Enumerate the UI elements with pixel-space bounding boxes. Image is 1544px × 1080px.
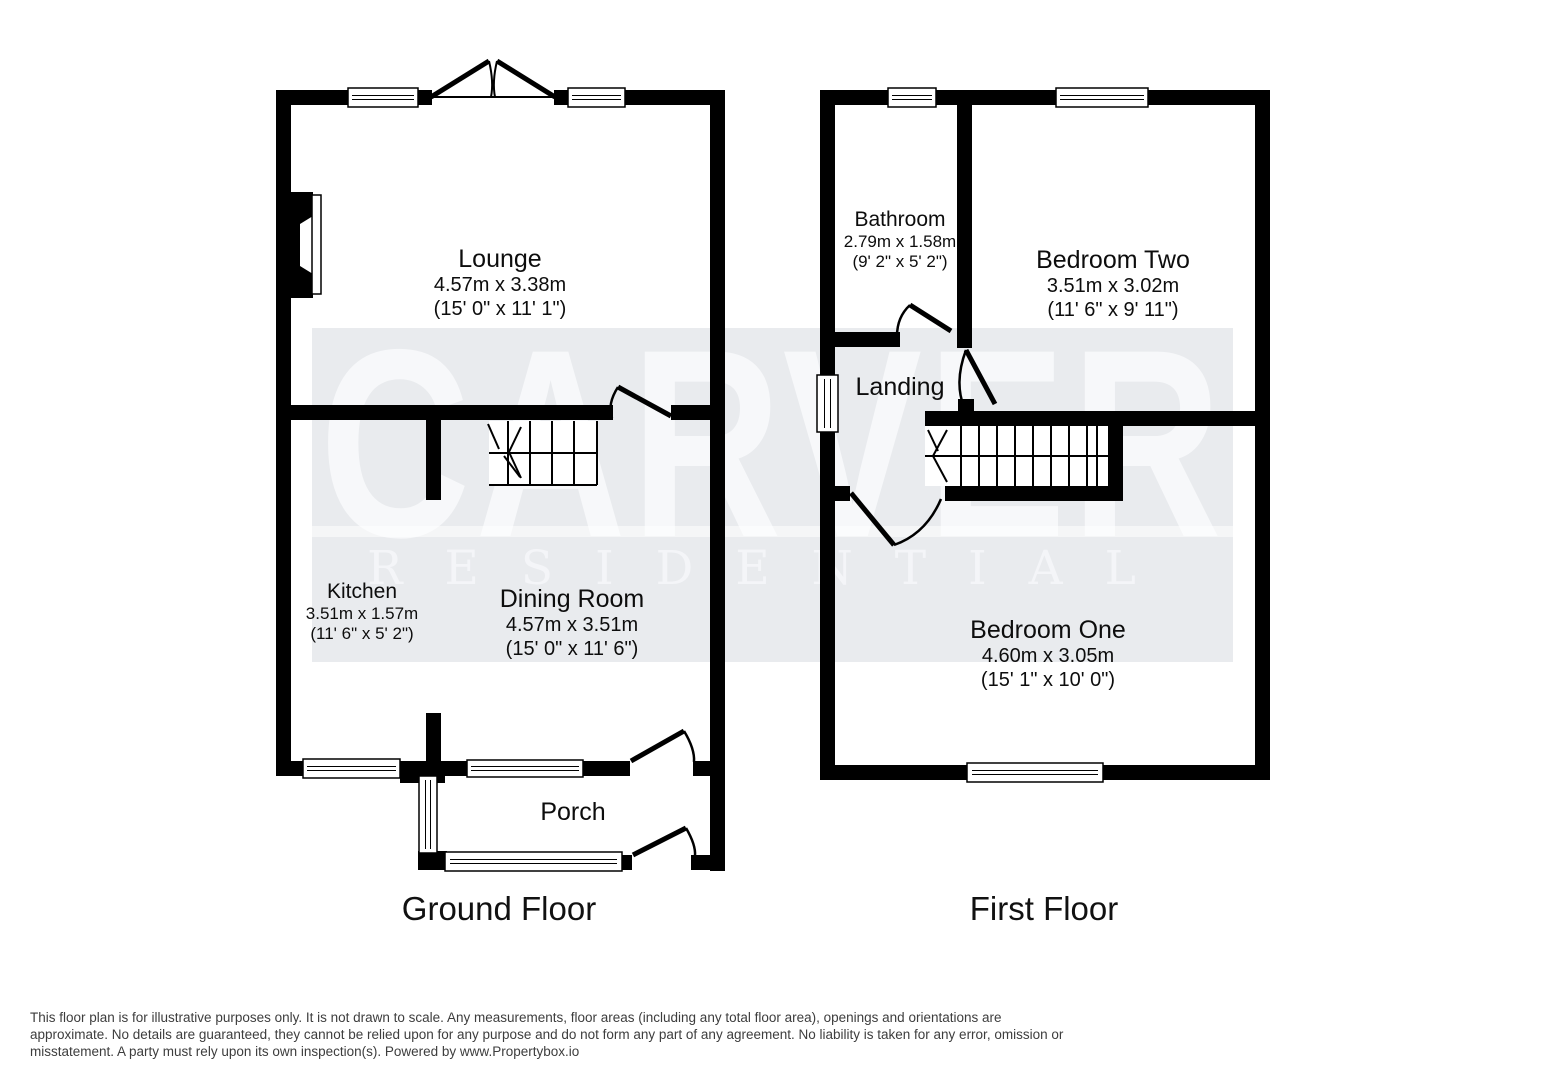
porch-side-window (419, 776, 437, 853)
room-dimensions-imperial: (11' 6" x 9' 11") (1036, 299, 1190, 323)
room-dimensions-metric: 4.60m x 3.05m (970, 645, 1126, 669)
room-dimensions-metric: 4.57m x 3.51m (500, 614, 645, 638)
floorplan-drawing (0, 0, 1544, 1080)
room-label-landing: Landing (856, 372, 945, 402)
lounge-door (610, 387, 671, 418)
room-name: Bedroom Two (1036, 245, 1190, 275)
room-label-dining-room: Dining Room 4.57m x 3.51m (15' 0" x 11' … (500, 584, 645, 661)
room-label-bedroom-two: Bedroom Two 3.51m x 3.02m (11' 6" x 9' 1… (1036, 245, 1190, 322)
lounge-window-left (348, 88, 418, 107)
room-name: Dining Room (500, 584, 645, 614)
floorplan-page: { "watermark": { "title": "CARVER", "sub… (0, 0, 1544, 1080)
ground-floor-title: Ground Floor (402, 890, 596, 928)
bedroom-one-window (967, 763, 1103, 782)
kitchen-window (303, 759, 400, 778)
room-dimensions-metric: 3.51m x 1.57m (306, 604, 418, 624)
room-label-porch: Porch (540, 797, 605, 827)
disclaimer-line: misstatement. A party must rely upon its… (30, 1043, 1063, 1060)
room-dimensions-metric: 3.51m x 3.02m (1036, 275, 1190, 299)
room-dimensions-imperial: (15' 0" x 11' 6") (500, 638, 645, 662)
dining-room-window (467, 760, 583, 777)
room-name: Bedroom One (970, 615, 1126, 645)
room-name: Porch (540, 797, 605, 827)
disclaimer-text: This floor plan is for illustrative purp… (30, 1009, 1063, 1060)
room-label-bathroom: Bathroom 2.79m x 1.58m (9' 2" x 5' 2") (844, 207, 956, 272)
room-dimensions-imperial: (15' 1" x 10' 0") (970, 669, 1126, 693)
room-name: Landing (856, 372, 945, 402)
porch-front-window (445, 852, 622, 871)
disclaimer-line: approximate. No details are guaranteed, … (30, 1026, 1063, 1043)
room-label-lounge: Lounge 4.57m x 3.38m (15' 0" x 11' 1") (434, 244, 567, 321)
room-dimensions-metric: 4.57m x 3.38m (434, 274, 567, 298)
room-name: Bathroom (844, 207, 956, 232)
bedroom-two-door (959, 350, 995, 407)
chimney-breast (291, 192, 321, 298)
room-dimensions-imperial: (9' 2" x 5' 2") (844, 252, 956, 272)
porch-inner-door (631, 731, 694, 762)
disclaimer-line: This floor plan is for illustrative purp… (30, 1009, 1063, 1026)
room-dimensions-imperial: (15' 0" x 11' 1") (434, 298, 567, 322)
bedroom-one-door (851, 493, 941, 545)
ground-floor-stairs (488, 421, 597, 485)
bathroom-door (897, 305, 951, 336)
ground-floor-plan (276, 61, 725, 871)
room-label-bedroom-one: Bedroom One 4.60m x 3.05m (15' 1" x 10' … (970, 615, 1126, 692)
bedroom-two-window (1056, 88, 1148, 107)
first-floor-title: First Floor (970, 890, 1119, 928)
room-name: Kitchen (306, 579, 418, 604)
french-doors (430, 61, 556, 97)
first-floor-stairs (925, 426, 1108, 486)
room-label-kitchen: Kitchen 3.51m x 1.57m (11' 6" x 5' 2") (306, 579, 418, 644)
room-name: Lounge (434, 244, 567, 274)
porch-entrance-door (633, 828, 695, 856)
bathroom-window (888, 88, 936, 107)
room-dimensions-imperial: (11' 6" x 5' 2") (306, 624, 418, 644)
room-dimensions-metric: 2.79m x 1.58m (844, 232, 956, 252)
landing-window (817, 375, 838, 432)
lounge-window-right (568, 88, 625, 107)
